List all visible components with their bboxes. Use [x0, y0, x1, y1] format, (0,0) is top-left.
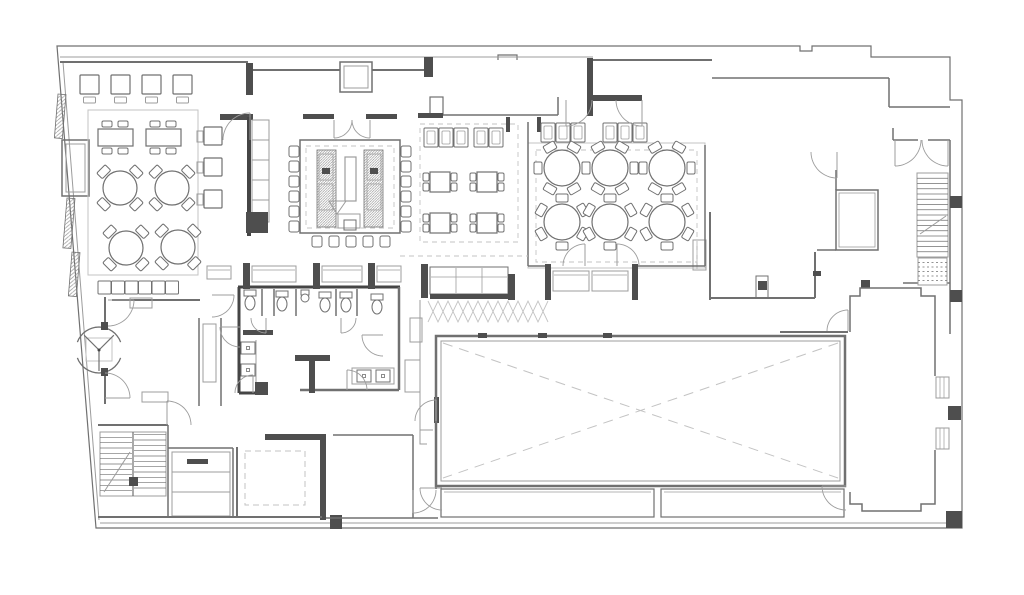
lounge-chair — [603, 123, 617, 142]
chair — [423, 173, 429, 181]
chair — [470, 173, 476, 181]
bar-stool — [289, 146, 299, 157]
dining-table-round — [155, 224, 202, 271]
chair — [498, 224, 504, 232]
chair — [498, 173, 504, 181]
booth — [204, 127, 222, 145]
banquette — [377, 266, 401, 282]
bar-stool — [401, 221, 411, 232]
sink-basin — [376, 370, 390, 382]
floor-plan-sheet — [0, 0, 1024, 595]
chair — [534, 162, 542, 174]
bar-stool — [346, 236, 356, 247]
seat — [166, 281, 179, 294]
lounge-chair — [571, 123, 585, 142]
seat — [139, 281, 152, 294]
table-top — [111, 75, 130, 94]
bench — [115, 97, 127, 103]
chair — [166, 121, 176, 127]
toilet-bowl — [372, 300, 382, 314]
dining-table-round — [149, 165, 196, 212]
lounge-chair — [474, 128, 488, 147]
chair — [498, 214, 504, 222]
chair — [687, 162, 695, 174]
chair — [639, 162, 647, 174]
toilet-icon — [371, 294, 383, 314]
chair — [150, 121, 160, 127]
wall-poche — [330, 515, 342, 529]
banquette — [322, 266, 362, 282]
bench — [84, 97, 96, 103]
banquette — [553, 271, 589, 291]
wall-poche — [101, 322, 108, 330]
wall-poche — [587, 58, 593, 116]
toilet-icon — [276, 291, 288, 311]
sink-basin — [241, 364, 255, 376]
sink-basin — [241, 342, 255, 354]
bench — [146, 97, 158, 103]
seat — [98, 281, 111, 294]
chair — [423, 183, 429, 191]
wall-poche — [313, 263, 320, 289]
toilet-tank — [340, 292, 352, 298]
wall-poche — [320, 434, 326, 520]
stair-northeast — [917, 173, 948, 257]
bar-stool — [380, 236, 390, 247]
lounge-chair — [454, 128, 468, 147]
toilet-bowl — [320, 298, 330, 312]
chair — [102, 121, 112, 127]
wall-poche — [592, 95, 642, 101]
toilet-bowl — [245, 296, 255, 310]
bar-stool — [289, 206, 299, 217]
banquette — [252, 266, 296, 282]
dining-table-round — [103, 225, 150, 272]
chair — [470, 183, 476, 191]
wall-poche — [129, 477, 138, 486]
bench-frame — [322, 266, 362, 282]
table-top — [142, 75, 161, 94]
bar-stool — [401, 161, 411, 172]
chair — [118, 121, 128, 127]
chair — [582, 162, 590, 174]
table-top — [649, 150, 685, 186]
table-top — [649, 204, 685, 240]
booth — [204, 190, 222, 208]
sink-icon — [241, 342, 255, 354]
wall-poche — [861, 280, 870, 288]
chair — [556, 194, 568, 202]
wall-poche — [246, 212, 268, 233]
booth — [204, 158, 222, 176]
wall-poche — [295, 355, 330, 361]
chair — [451, 214, 457, 222]
urinal-bowl — [301, 294, 309, 302]
table-top — [477, 172, 497, 192]
table-top — [103, 171, 137, 205]
bench-frame — [377, 266, 401, 282]
seat — [112, 281, 125, 294]
wall-poche — [246, 63, 253, 95]
bench — [177, 97, 189, 103]
table-top — [155, 171, 189, 205]
seat — [125, 281, 138, 294]
hall-bench — [207, 266, 231, 279]
toilet-icon — [244, 290, 256, 310]
table-top — [98, 129, 133, 146]
bar-stool — [289, 161, 299, 172]
lounge-chair — [618, 123, 632, 142]
wall-poche — [187, 459, 208, 464]
wall-poche — [508, 274, 515, 300]
lounge-chair — [489, 128, 503, 147]
table-top — [173, 75, 192, 94]
door-hub — [98, 349, 101, 352]
bar-stool — [312, 236, 322, 247]
chair — [102, 148, 112, 154]
table-top — [544, 204, 580, 240]
wall-poche — [430, 294, 512, 299]
wall-poche — [368, 263, 375, 289]
wall-poche — [421, 264, 428, 298]
sink-icon — [241, 364, 255, 376]
wall-poche — [303, 114, 334, 119]
wall-poche — [545, 264, 551, 300]
wall-poche — [813, 271, 821, 276]
wall-poche — [632, 264, 638, 300]
table-top — [80, 75, 99, 94]
toilet-tank — [276, 291, 288, 297]
wall-poche — [946, 511, 962, 528]
bar-stool — [401, 146, 411, 157]
table-top — [592, 204, 628, 240]
bench-frame — [207, 266, 231, 279]
bar-stool — [401, 176, 411, 187]
wall-poche — [478, 333, 487, 338]
chair — [451, 224, 457, 232]
table-top — [544, 150, 580, 186]
wall-poche — [506, 117, 510, 132]
wall-poche — [950, 196, 962, 208]
chair — [661, 194, 673, 202]
bar-stool — [289, 221, 299, 232]
lounge-chair — [424, 128, 438, 147]
wall-poche — [537, 117, 541, 132]
table-top — [109, 231, 143, 265]
wall-poche — [370, 168, 378, 174]
toilet-bowl — [277, 297, 287, 311]
bench-frame — [553, 271, 589, 291]
bar-stool — [329, 236, 339, 247]
table-top — [161, 230, 195, 264]
chair — [118, 148, 128, 154]
toilet-tank — [244, 290, 256, 296]
toilet-tank — [319, 292, 331, 298]
table-top — [477, 213, 497, 233]
wall-poche — [255, 382, 268, 395]
bar-stool — [289, 176, 299, 187]
bench-frame — [252, 266, 296, 282]
toilet-icon — [340, 292, 352, 312]
lounge-chair — [541, 123, 555, 142]
floor-plan — [0, 0, 1024, 595]
bench-frame — [592, 271, 628, 291]
wall-poche — [758, 281, 767, 290]
wall-poche — [418, 113, 443, 118]
bar-stool — [289, 191, 299, 202]
sink-icon — [376, 370, 390, 382]
stair-southwest — [100, 432, 166, 496]
wall-poche — [603, 333, 612, 338]
wall-poche — [950, 290, 962, 302]
table-top — [592, 150, 628, 186]
chair — [150, 148, 160, 154]
wall-poche — [948, 406, 961, 420]
chair — [630, 162, 638, 174]
chair — [498, 183, 504, 191]
chair — [166, 148, 176, 154]
wall-poche — [243, 263, 250, 289]
chair — [470, 224, 476, 232]
chair — [604, 242, 616, 250]
table-top — [146, 129, 181, 146]
chair — [451, 183, 457, 191]
toilet-tank — [371, 294, 383, 300]
wall-poche — [265, 434, 322, 440]
bar-stool — [363, 236, 373, 247]
wall-poche — [424, 57, 433, 77]
lounge-chair — [439, 128, 453, 147]
chair — [423, 214, 429, 222]
wall-poche — [538, 333, 547, 338]
table-top — [430, 213, 450, 233]
wall-poche — [322, 168, 330, 174]
seat — [152, 281, 165, 294]
chair — [451, 173, 457, 181]
chair — [661, 242, 673, 250]
bar-stool — [401, 206, 411, 217]
wall-poche — [366, 114, 397, 119]
chair — [470, 214, 476, 222]
urinal-icon — [301, 290, 309, 302]
chair — [556, 242, 568, 250]
wall-poche — [101, 368, 108, 376]
banquette — [592, 271, 628, 291]
stair-northeast-below — [918, 258, 947, 285]
chair — [423, 224, 429, 232]
dining-table-round — [97, 165, 144, 212]
chair — [604, 194, 616, 202]
toilet-bowl — [341, 298, 351, 312]
table-top — [430, 172, 450, 192]
toilet-icon — [319, 292, 331, 312]
bar-stool — [401, 191, 411, 202]
